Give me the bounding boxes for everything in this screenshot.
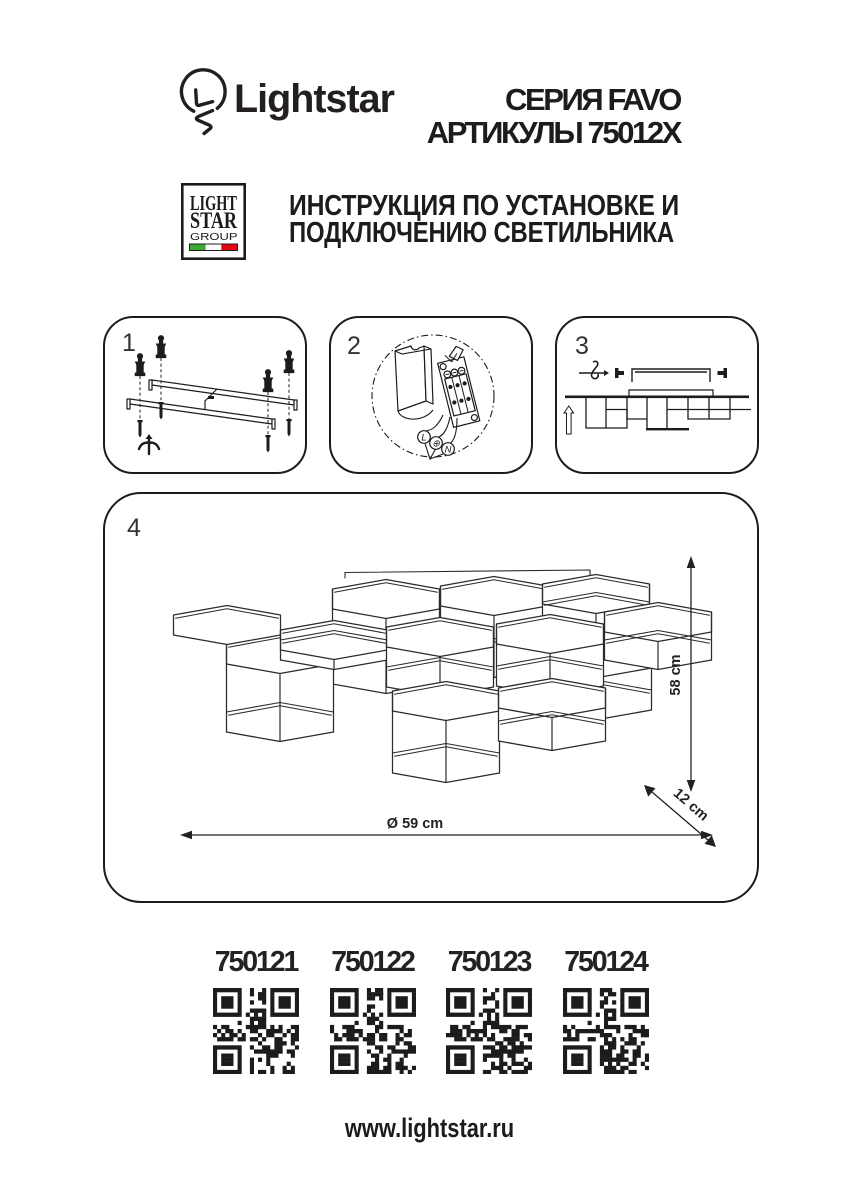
svg-text:3: 3: [575, 332, 589, 360]
svg-text:58 cm: 58 cm: [668, 654, 684, 695]
svg-text:1: 1: [122, 329, 136, 357]
svg-text:N: N: [445, 445, 452, 456]
svg-text:⊕: ⊕: [432, 439, 440, 450]
svg-text:4: 4: [127, 514, 141, 542]
svg-text:L: L: [421, 433, 426, 444]
svg-text:2: 2: [347, 332, 361, 360]
svg-text:Ø 59 cm: Ø 59 cm: [387, 816, 443, 832]
svg-text:GROUP: GROUP: [190, 231, 238, 243]
svg-text:12 cm: 12 cm: [670, 785, 712, 824]
svg-text:STAR: STAR: [190, 208, 237, 233]
